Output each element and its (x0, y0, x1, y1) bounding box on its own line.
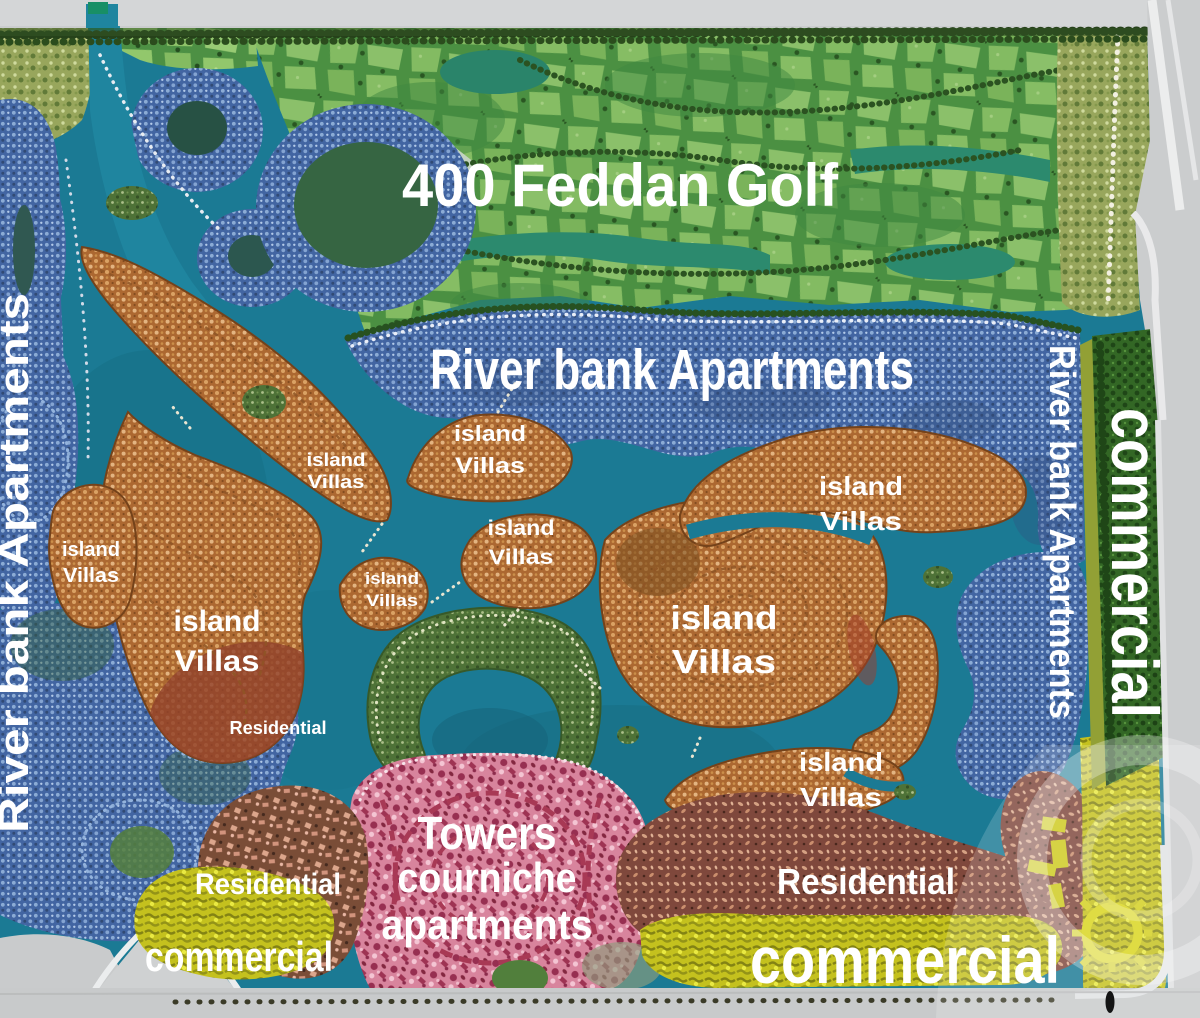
svg-text:Residential: Residential (230, 718, 327, 738)
svg-text:Residential: Residential (195, 868, 341, 901)
svg-text:island: island (819, 471, 903, 501)
svg-text:commercial: commercial (1098, 408, 1172, 718)
svg-text:commercial: commercial (750, 923, 1060, 997)
svg-text:island: island (307, 450, 366, 470)
svg-text:island: island (488, 517, 555, 540)
svg-text:island: island (62, 539, 120, 561)
svg-text:island: island (174, 605, 261, 638)
svg-text:Residential: Residential (777, 861, 955, 902)
svg-text:island: island (671, 599, 778, 636)
svg-text:commercial: commercial (145, 933, 333, 980)
svg-text:Villas: Villas (820, 506, 902, 536)
svg-text:island: island (365, 569, 419, 588)
svg-text:Villas: Villas (672, 643, 776, 680)
svg-text:courniche: courniche (398, 854, 577, 901)
svg-text:Towers: Towers (418, 807, 557, 859)
svg-text:River bank Apartments: River bank Apartments (0, 293, 37, 833)
svg-text:400 Feddan Golf: 400 Feddan Golf (402, 152, 839, 219)
svg-text:River bank Apartments: River bank Apartments (1042, 345, 1083, 719)
svg-text:Villas: Villas (63, 565, 119, 587)
svg-text:island: island (454, 421, 526, 446)
svg-text:Villas: Villas (175, 645, 260, 678)
svg-text:apartments: apartments (382, 901, 593, 948)
svg-text:Villas: Villas (489, 546, 554, 569)
svg-text:Villas: Villas (800, 782, 882, 812)
svg-text:Villas: Villas (308, 472, 365, 492)
svg-text:island: island (799, 747, 883, 777)
svg-text:Villas: Villas (366, 591, 418, 610)
svg-text:River bank Apartments: River bank Apartments (430, 338, 914, 402)
svg-text:Villas: Villas (455, 453, 525, 478)
